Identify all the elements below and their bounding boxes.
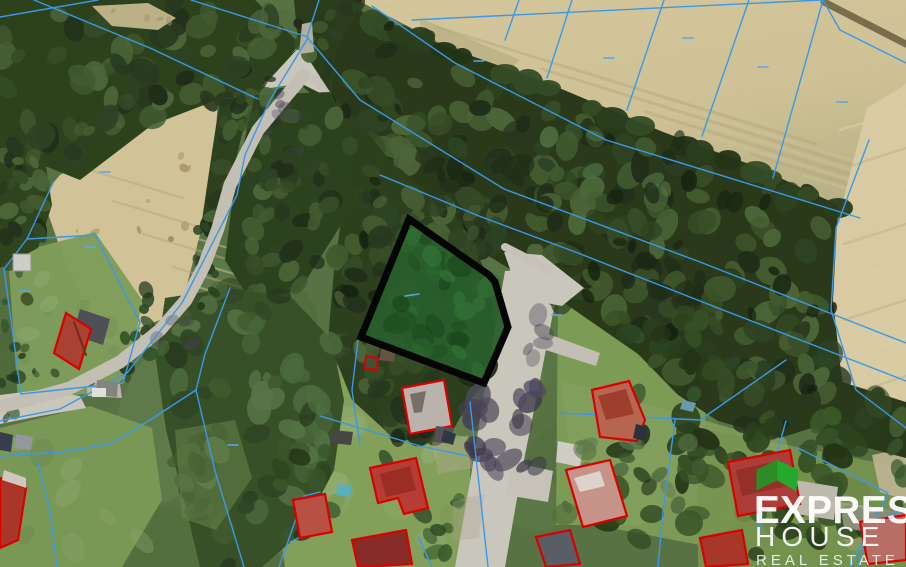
- svg-text:REAL ESTATE: REAL ESTATE: [756, 552, 899, 567]
- svg-text:HOUSE: HOUSE: [755, 521, 886, 552]
